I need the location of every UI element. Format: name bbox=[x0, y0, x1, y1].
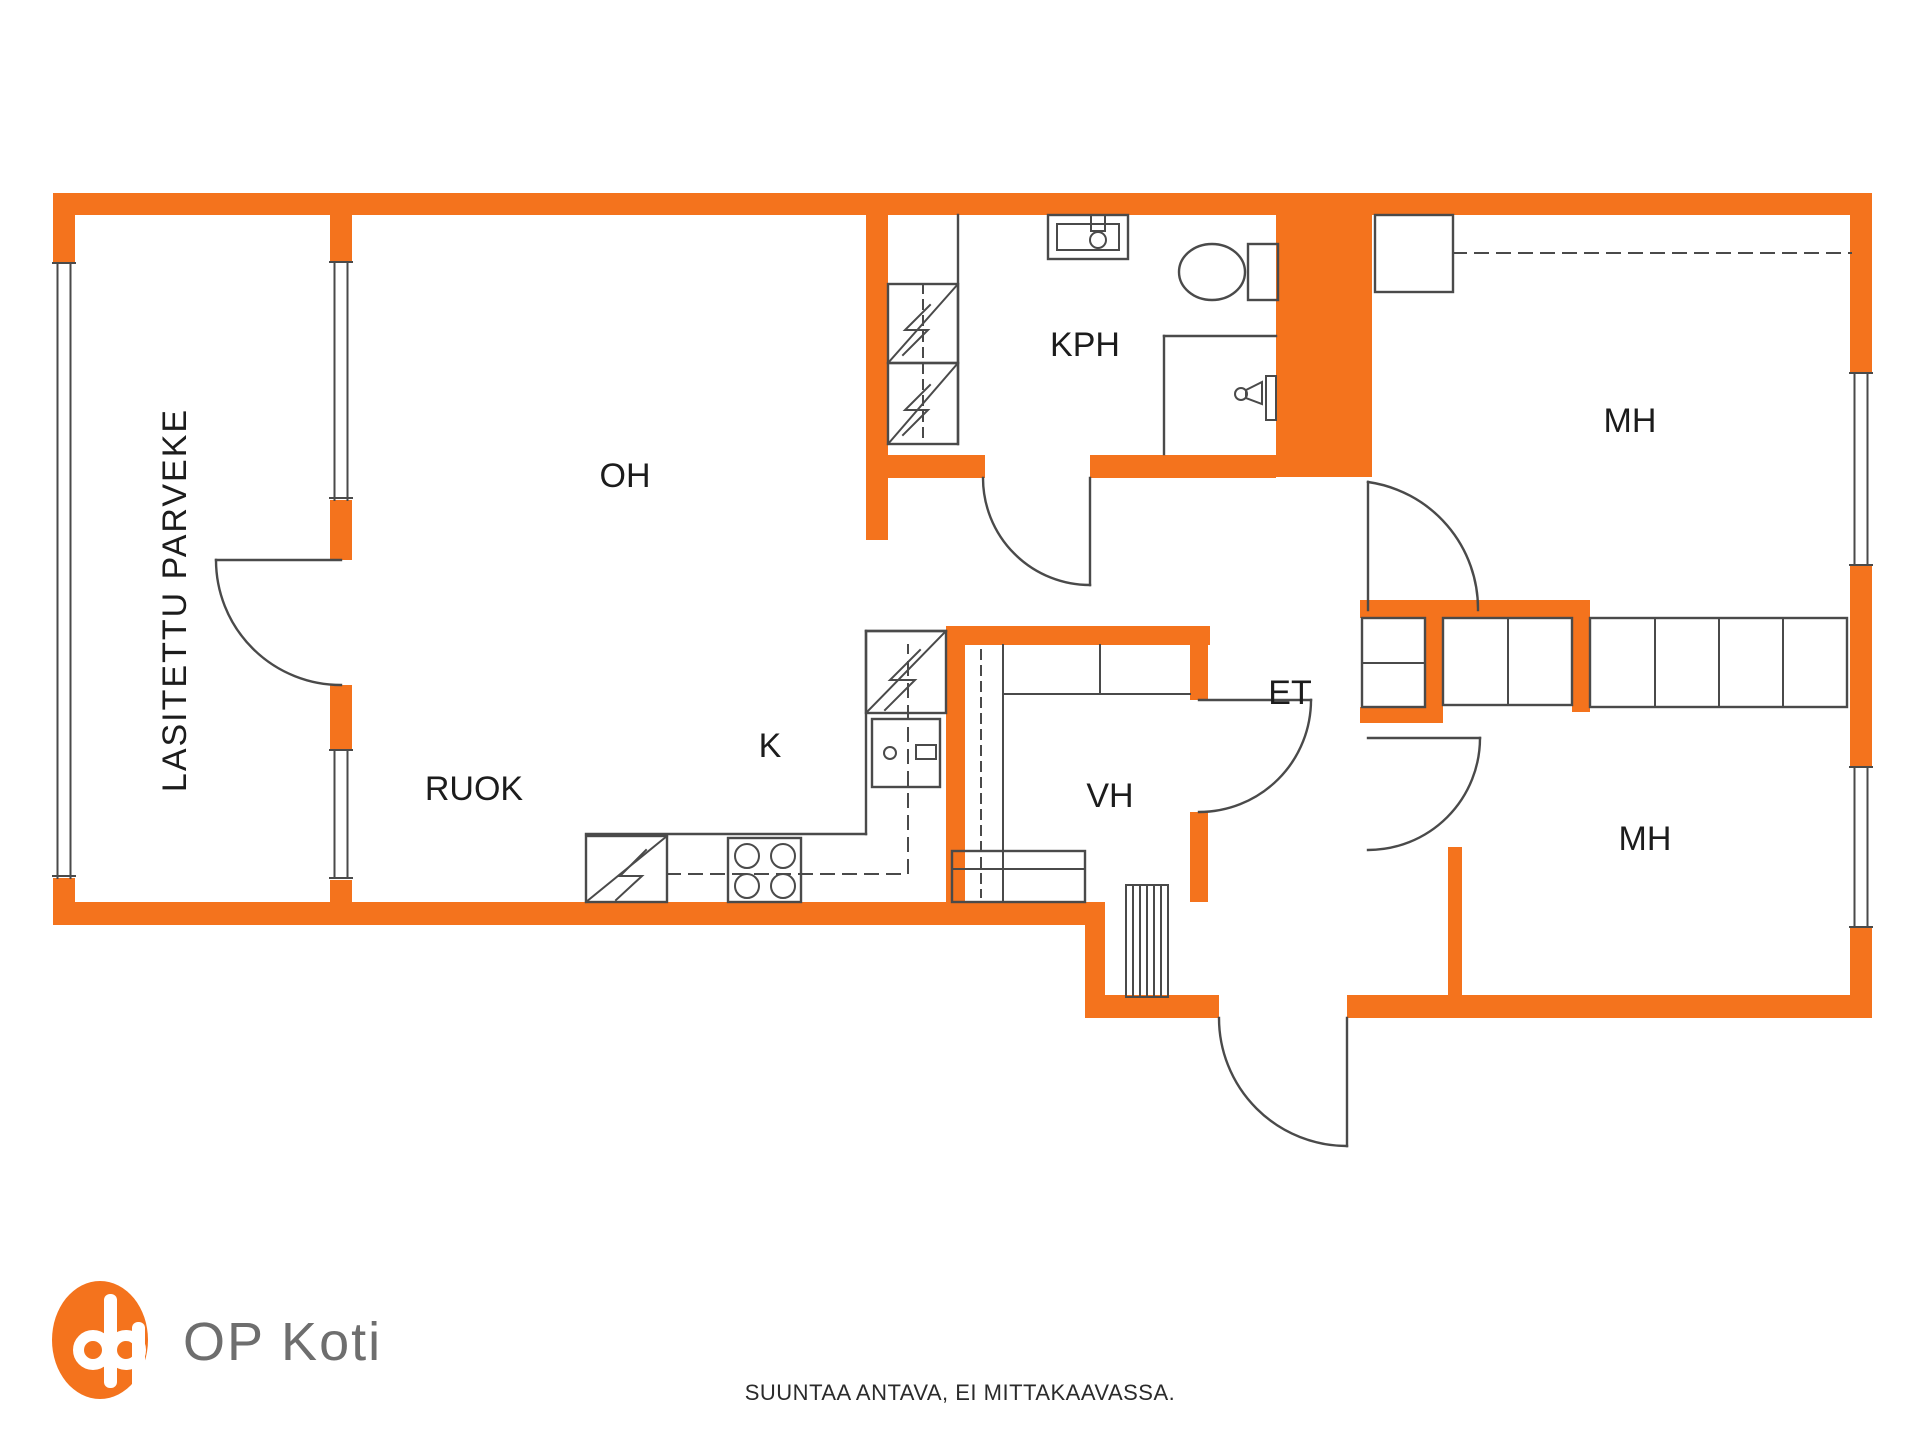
disclaimer-text: SUUNTAA ANTAVA, EI MITTAKAAVASSA. bbox=[745, 1380, 1176, 1405]
floorplan-svg: LASITETTU PARVEKE OH KPH MH RUOK K VH ET… bbox=[0, 0, 1920, 1440]
room-label-dining: RUOK bbox=[425, 770, 524, 808]
room-label-bedroom-top: MH bbox=[1604, 402, 1657, 440]
brand-text: OP Koti bbox=[183, 1312, 382, 1372]
room-label-living-room: OH bbox=[600, 457, 651, 495]
room-label-entry: ET bbox=[1268, 674, 1311, 712]
room-label-bedroom-bottom: MH bbox=[1619, 820, 1672, 858]
room-label-kitchen: K bbox=[759, 727, 782, 765]
room-label-bathroom: KPH bbox=[1050, 326, 1120, 364]
room-label-balcony: LASITETTU PARVEKE bbox=[156, 408, 194, 792]
room-label-storage: VH bbox=[1086, 777, 1133, 815]
stairs-icon bbox=[1126, 885, 1168, 997]
